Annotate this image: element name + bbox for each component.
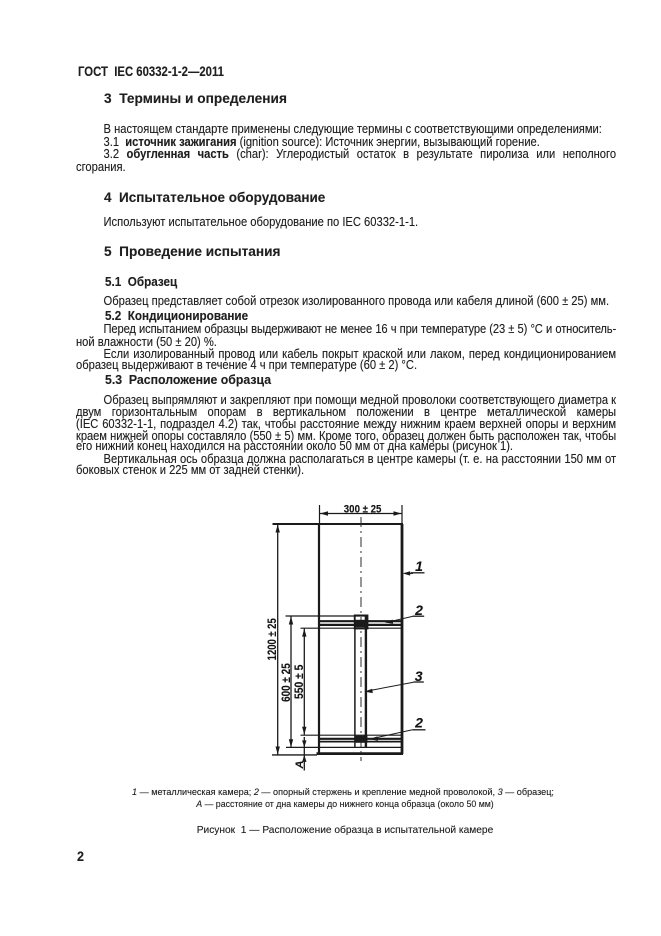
svg-text:1200 ± 25: 1200 ± 25: [266, 618, 279, 660]
svg-text:2: 2: [414, 602, 423, 618]
svg-text:1: 1: [415, 558, 423, 574]
svg-text:600 ± 25: 600 ± 25: [280, 663, 293, 702]
svg-text:300 ± 25: 300 ± 25: [344, 504, 382, 516]
svg-text:A: A: [294, 760, 306, 769]
svg-text:3: 3: [415, 668, 423, 684]
svg-text:550 ± 5: 550 ± 5: [293, 665, 306, 699]
svg-text:2: 2: [414, 714, 423, 730]
